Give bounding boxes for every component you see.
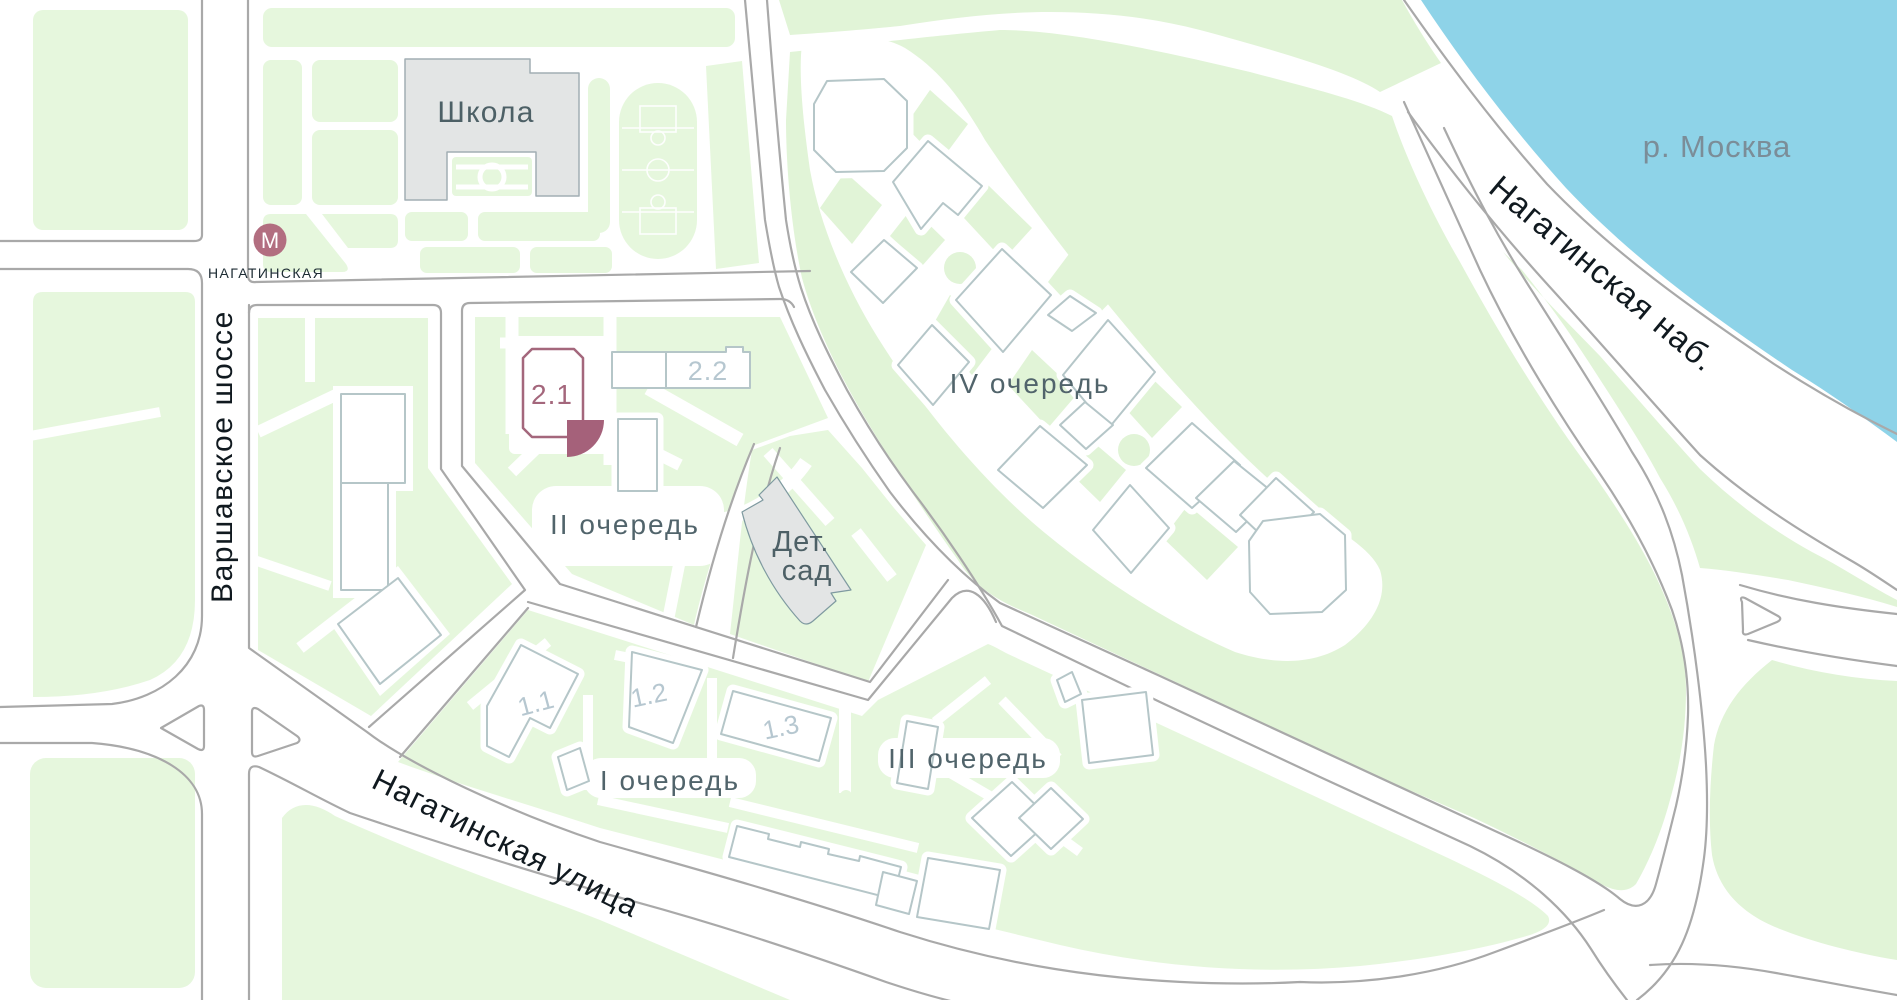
svg-text:М: М <box>261 228 279 253</box>
svg-text:НАГАТИНСКАЯ: НАГАТИНСКАЯ <box>208 265 324 281</box>
svg-text:2.1: 2.1 <box>531 379 573 410</box>
svg-text:2.2: 2.2 <box>688 356 729 386</box>
svg-text:р. Москва: р. Москва <box>1643 129 1791 164</box>
svg-text:Школа: Школа <box>437 96 534 129</box>
svg-text:Варшавское шоссе: Варшавское шоссе <box>206 310 239 603</box>
svg-text:I очередь: I очередь <box>600 765 740 796</box>
svg-text:II очередь: II очередь <box>550 509 700 540</box>
svg-text:IV очередь: IV очередь <box>950 368 1111 399</box>
svg-text:Дет.: Дет. <box>773 526 830 558</box>
svg-text:сад: сад <box>782 555 833 587</box>
svg-text:III очередь: III очередь <box>888 743 1048 774</box>
